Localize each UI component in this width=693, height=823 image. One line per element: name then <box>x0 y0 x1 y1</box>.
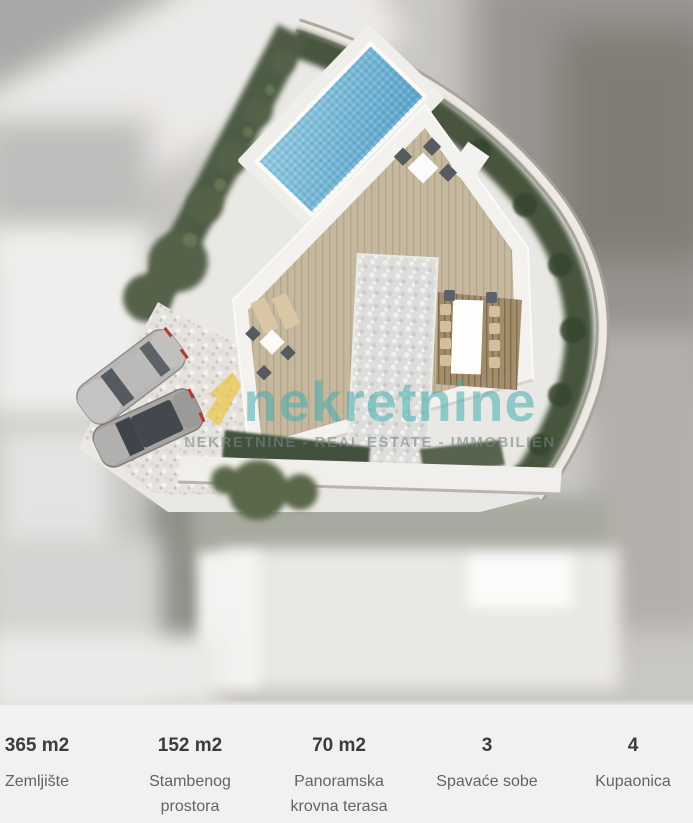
stat-value: 152 m2 <box>130 735 250 757</box>
real-estate-listing-card: nekretnine NEKRETNINE - REAL ESTATE - IM… <box>0 0 693 823</box>
stat-label: Panoramska krovna terasa <box>279 770 399 820</box>
stat-label: Kupaonica <box>553 770 693 795</box>
stat-label: Spavaće sobe <box>407 770 567 795</box>
property-render <box>0 0 693 705</box>
stat-label: Stambenog prostora <box>130 770 250 820</box>
dining-area <box>436 290 522 390</box>
stat-value: 70 m2 <box>279 735 399 757</box>
stat-item-living-space: 152 m2 Stambenog prostora <box>130 735 250 820</box>
property-stats-bar: 365 m2 Zemljište 152 m2 Stambenog prosto… <box>0 705 693 823</box>
stat-value: 365 m2 <box>0 735 97 757</box>
stat-item-bedrooms: 3 Spavaće sobe <box>407 735 567 795</box>
stat-label: Zemljište <box>0 770 97 795</box>
stat-item-bathrooms: 4 Kupaonica <box>553 735 693 795</box>
dining-table <box>451 299 484 374</box>
stat-item-roof-terrace: 70 m2 Panoramska krovna terasa <box>279 735 399 820</box>
stat-value: 3 <box>407 735 567 757</box>
stat-item-land: 365 m2 Zemljište <box>0 735 97 795</box>
stat-value: 4 <box>553 735 693 757</box>
